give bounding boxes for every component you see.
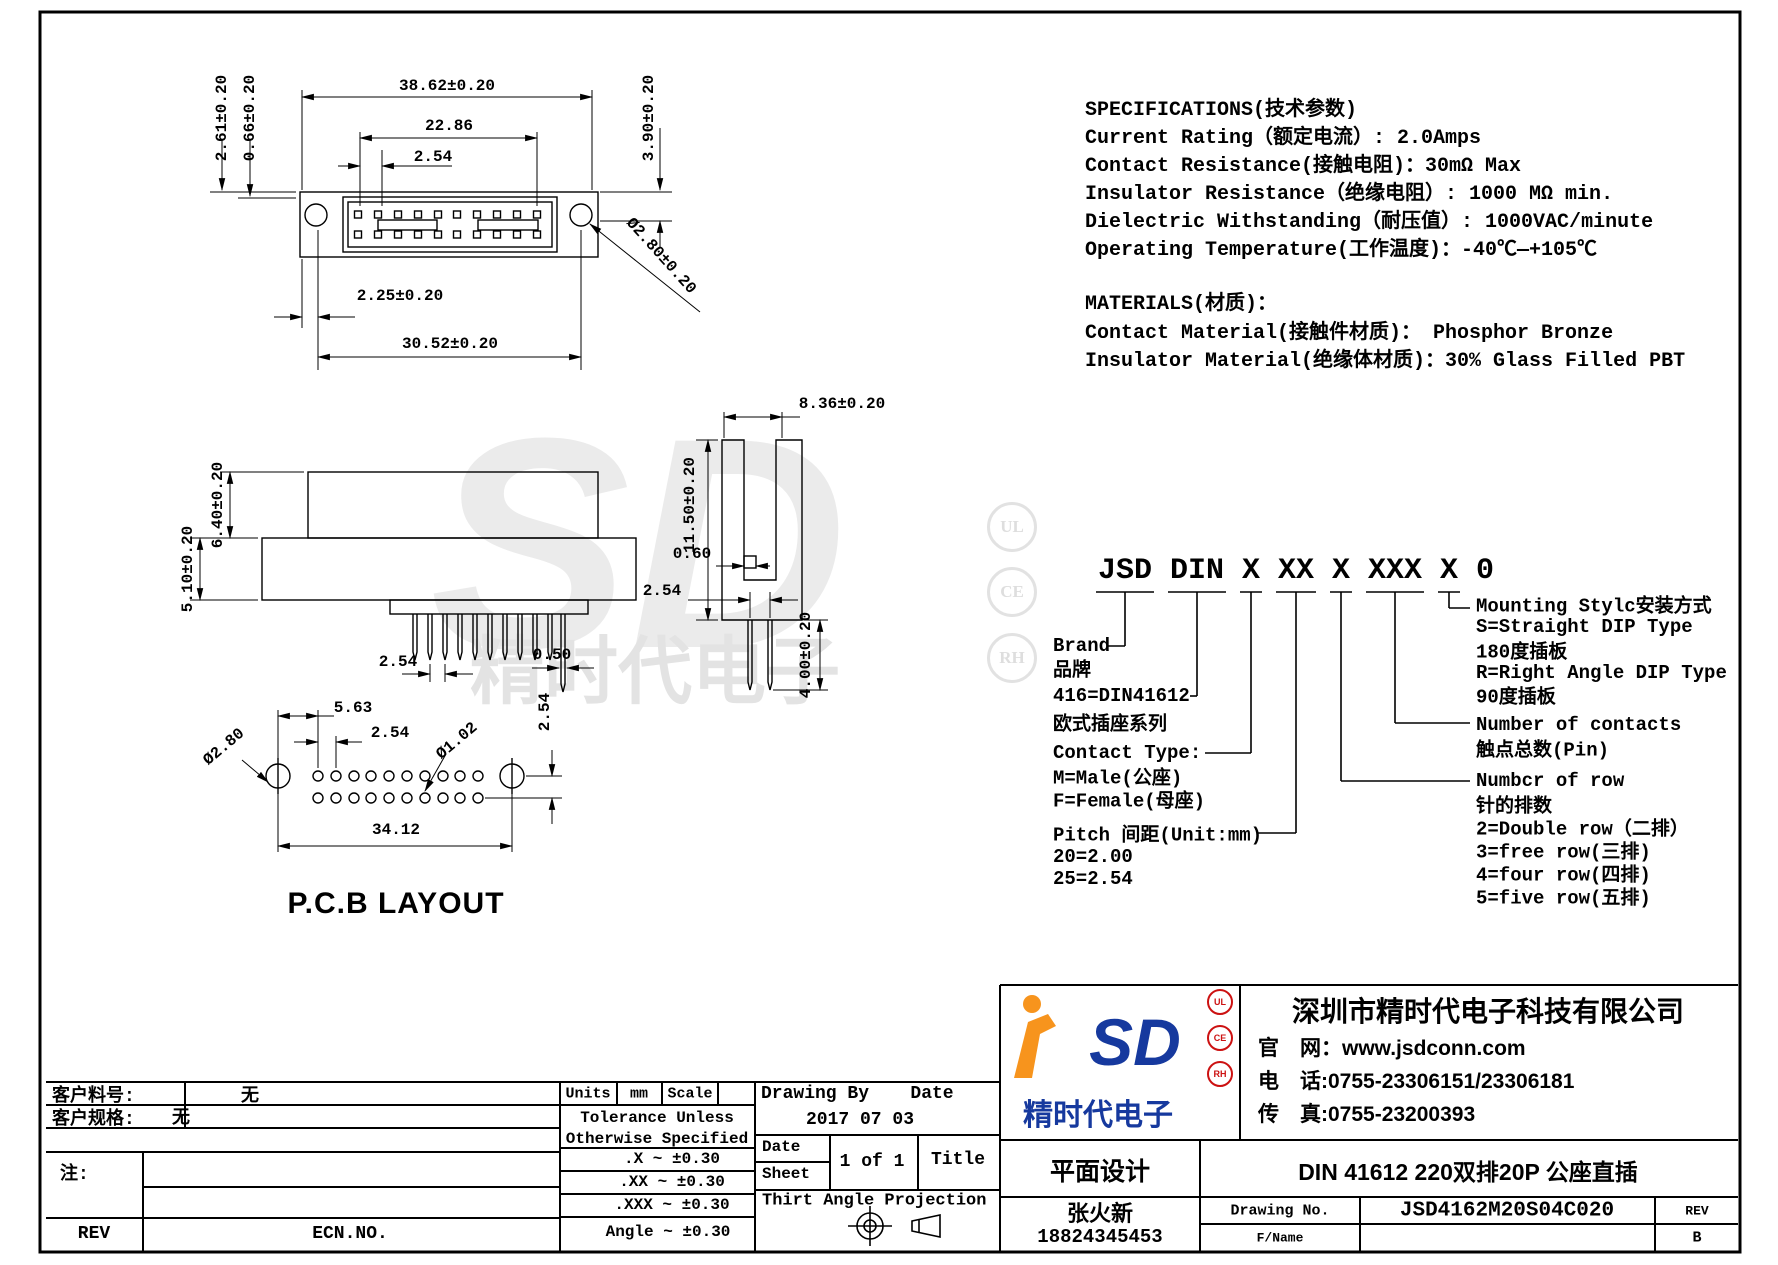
material-contact: Contact Material(接触件材质)： Phosphor Bronze (1085, 315, 1613, 345)
dim-front-overall-width: 38.62±0.20 (399, 77, 495, 95)
scale-label: Scale (667, 1086, 712, 1103)
spec-current-rating: Current Rating（额定电流）: 2.0Amps (1085, 120, 1481, 150)
pn-num-contacts-label: Number of contacts (1476, 714, 1681, 736)
materials-title: MATERIALS(材质)： (1085, 286, 1277, 316)
pn-mounting-straight: S=Straight DIP Type (1476, 616, 1693, 638)
design-type: 平面设计 (1050, 1152, 1150, 1188)
dim-end-pitch: 2.54 (643, 582, 681, 600)
dim-pcb-d2: 2.54 (371, 724, 409, 742)
pn-num-contacts-cn: 触点总数(Pin) (1476, 735, 1609, 762)
customer-spec-label: 客户规格: (52, 1104, 135, 1130)
projection-symbol-icon (848, 1206, 940, 1246)
specs-title: SPECIFICATIONS(技术参数) (1085, 92, 1357, 122)
customer-part-value: 无 (241, 1081, 259, 1107)
title-label: Title (931, 1150, 985, 1170)
rev-label: REV (78, 1224, 110, 1244)
company-website: 官 网：www.jsdconn.com (1258, 1032, 1526, 1062)
dim-side-pitch: 2.54 (379, 653, 417, 671)
dim-pcb-row-pitch: 2.54 (536, 693, 554, 731)
spec-operating-temp: Operating Temperature(工作温度)：-40℃—+105℃ (1085, 232, 1597, 262)
company-logo-icon (1014, 995, 1056, 1078)
spec-insulator-resistance: Insulator Resistance（绝缘电阻）: 1000 MΩ min. (1085, 176, 1613, 206)
dim-front-hole-span: 30.52±0.20 (402, 335, 498, 353)
cert-rh-badge: RH (1207, 1061, 1233, 1087)
sheet-label: Sheet (762, 1165, 810, 1183)
cert-ce-text: CE (1214, 1033, 1227, 1043)
fname-label: F/Name (1257, 1231, 1304, 1246)
pn-series-cn: 欧式插座系列 (1053, 709, 1167, 736)
designer-name: 张火新 (1067, 1196, 1133, 1228)
front-view (300, 192, 598, 257)
dim-end-height: 11.50±0.20 (681, 457, 699, 553)
company-name: 深圳市精时代电子科技有限公司 (1292, 990, 1684, 1030)
pn-row-5: 5=five row(五排) (1476, 883, 1651, 910)
pn-num-row-label: Numbcr of row (1476, 770, 1624, 792)
company-phone: 电 话:0755-23306151/23306181 (1258, 1065, 1574, 1095)
date-cell-label: Date (762, 1138, 800, 1156)
rev-col-label: REV (1685, 1204, 1708, 1219)
date-value: 2017 07 03 (806, 1110, 914, 1130)
pn-pitch-254: 25=2.54 (1053, 868, 1133, 890)
part-number-code: JSD DIN X XX X XXX X 0 (1098, 554, 1494, 588)
dim-side-pin-width: 0.50 (533, 646, 571, 664)
tolerance-title-2: Otherwise Specified (566, 1130, 748, 1148)
spec-dielectric: Dielectric Withstanding（耐压值）: 1000VAC/mi… (1085, 204, 1653, 234)
dim-side-body-height: 5.10±0.20 (179, 526, 197, 612)
drawing-no-value: JSD4162M20S04C020 (1400, 1200, 1614, 1223)
dim-front-pitch: 2.54 (414, 148, 452, 166)
sheet-value: 1 of 1 (840, 1152, 905, 1172)
pn-mounting-label: Mounting Stylc安装方式 (1476, 591, 1712, 618)
units-value: mm (630, 1086, 648, 1103)
rev-value: B (1692, 1230, 1701, 1247)
designer-phone: 18824345453 (1037, 1226, 1162, 1248)
company-logo-brand: 精时代电子 (1023, 1090, 1173, 1134)
cert-ul-badge: UL (1207, 989, 1233, 1015)
dim-end-pin-length: 4.00±0.20 (797, 612, 815, 698)
dim-front-h1: 2.61±0.20 (213, 75, 231, 161)
company-fax: 传 真:0755-23200393 (1258, 1098, 1475, 1128)
pn-contact-type-label: Contact Type: (1053, 742, 1201, 764)
units-label: Units (565, 1086, 610, 1103)
date-header-label: Date (910, 1084, 953, 1104)
dim-front-edge-offset: 2.25±0.20 (357, 287, 443, 305)
tolerance-title-1: Tolerance Unless (580, 1109, 734, 1127)
cert-ce-badge: CE (1207, 1025, 1233, 1051)
ecn-no-label: ECN.NO. (312, 1224, 388, 1244)
company-logo-text: SD (1089, 1004, 1181, 1080)
pcb-layout-title: P.C.B LAYOUT (287, 887, 504, 921)
dim-end-slot: 0.60 (673, 545, 711, 563)
dim-front-h3: 3.90±0.20 (640, 75, 658, 161)
tolerance-xx: .XX ~ ±0.30 (619, 1173, 725, 1191)
dim-side-shroud-height: 6.40±0.20 (209, 462, 227, 548)
drawing-no-label: Drawing No. (1230, 1203, 1329, 1220)
pn-brand-cn: 品牌 (1053, 655, 1091, 682)
dim-pcb-span: 34.12 (372, 821, 420, 839)
projection-label: Thirt Angle Projection (762, 1192, 986, 1211)
tolerance-angle: Angle ~ ±0.30 (606, 1223, 731, 1241)
note-label: 注: (60, 1159, 89, 1185)
pn-contact-female: F=Female(母座) (1053, 786, 1205, 813)
engineering-drawing-sheet: SD 精时代电子 UL CE RH (0, 0, 1778, 1265)
pn-pitch-200: 20=2.00 (1053, 846, 1133, 868)
pn-mounting-90: 90度插板 (1476, 682, 1556, 709)
spec-contact-resistance: Contact Resistance(接触电阻)：30mΩ Max (1085, 148, 1521, 178)
cert-ul-text: UL (1214, 997, 1226, 1007)
cert-rh-text: RH (1214, 1069, 1227, 1079)
customer-spec-value: 无 (172, 1103, 190, 1129)
pcb-layout-view (266, 758, 524, 803)
dim-end-depth: 8.36±0.20 (799, 395, 885, 413)
product-title: DIN 41612 220双排20P 公座直插 (1298, 1153, 1638, 1187)
pn-series-label: 416=DIN41612 (1053, 685, 1190, 707)
tolerance-x: .X ~ ±0.30 (624, 1150, 720, 1168)
dim-front-pin-span: 22.86 (425, 117, 473, 135)
dim-front-h2: 0.66±0.20 (241, 75, 259, 161)
end-view (722, 440, 802, 690)
side-view (262, 472, 636, 692)
pn-pitch-label: Pitch 间距(Unit:mm) (1053, 820, 1262, 847)
material-insulator: Insulator Material(绝缘体材质)：30% Glass Fill… (1085, 343, 1685, 373)
pn-mounting-180: 180度插板 (1476, 637, 1567, 664)
drawing-by-label: Drawing By (761, 1084, 869, 1104)
dim-pcb-d1: 5.63 (334, 699, 372, 717)
tolerance-xxx: .XXX ~ ±0.30 (614, 1196, 729, 1214)
